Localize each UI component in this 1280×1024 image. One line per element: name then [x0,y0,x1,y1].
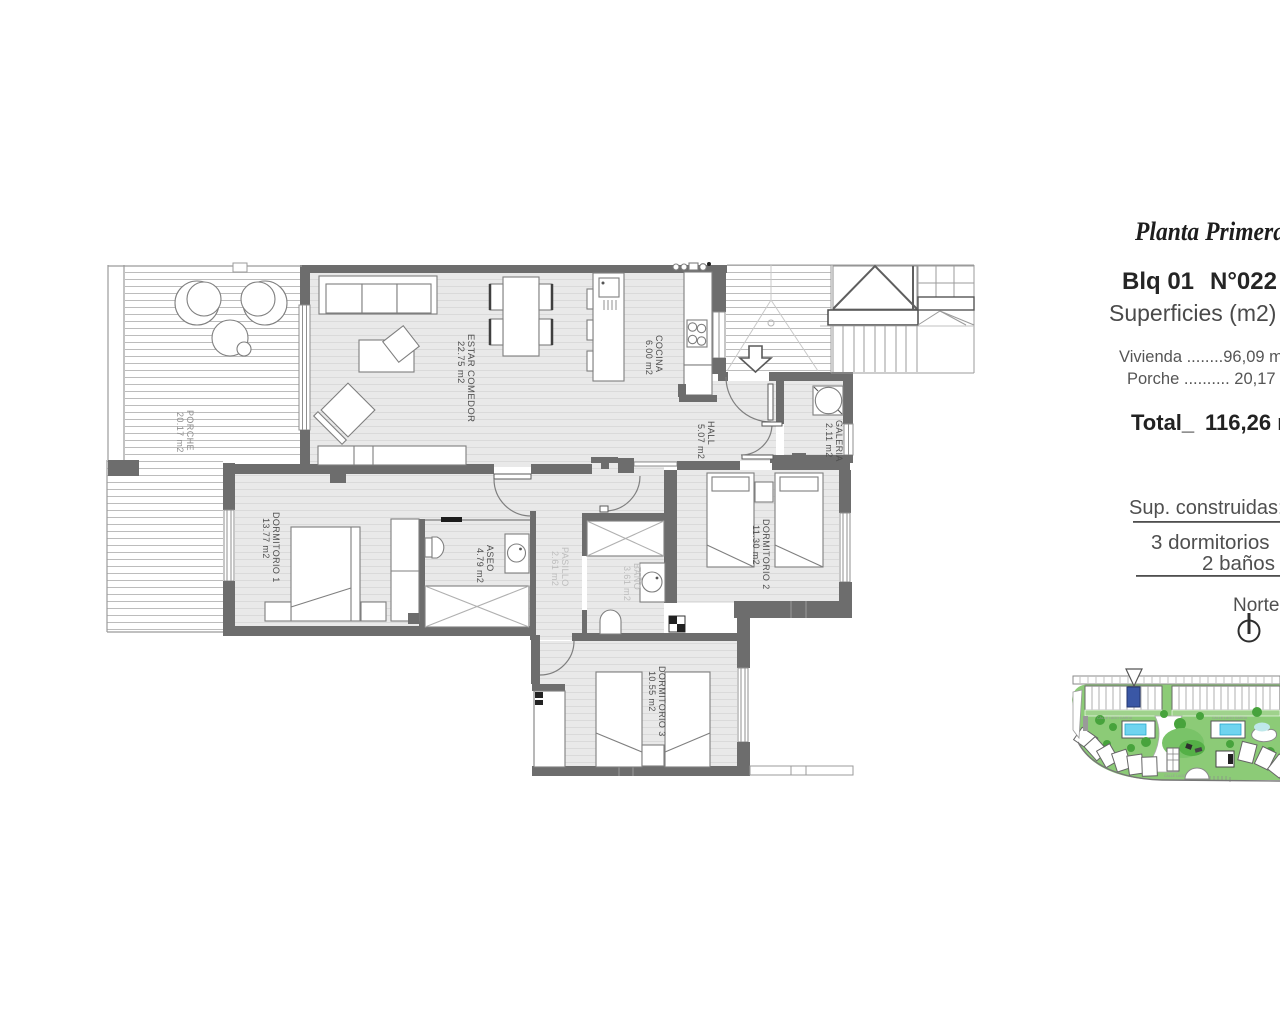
svg-text:PORCHE: PORCHE [185,410,195,451]
svg-text:3 dormitorios: 3 dormitorios [1151,531,1270,554]
svg-text:22.75 m2: 22.75 m2 [455,341,466,384]
svg-text:3.61 m2: 3.61 m2 [622,566,632,601]
svg-text:Total_: Total_ [1131,410,1195,435]
svg-text:Superficies (m2): Superficies (m2) [1109,300,1276,326]
svg-text:Norte: Norte [1233,595,1279,616]
svg-text:10.55 m2: 10.55 m2 [647,671,657,712]
svg-text:Vivienda ........96,09 m2: Vivienda ........96,09 m2 [1119,348,1280,366]
svg-text:116,26 m2: 116,26 m2 [1205,410,1280,435]
svg-text:CALLE LAGO GARDA: CALLE LAGO GARDA [1212,716,1248,720]
svg-text:2.61 m2: 2.61 m2 [550,551,560,586]
svg-text:DORMITORIO 3: DORMITORIO 3 [657,666,667,737]
svg-text:5.07 m2: 5.07 m2 [696,424,706,459]
svg-text:HALL: HALL [706,421,716,445]
svg-text:ASEO: ASEO [485,545,495,572]
svg-text:COCINA: COCINA [654,335,664,372]
svg-text:DORMITORIO 1: DORMITORIO 1 [271,512,281,583]
svg-text:11.30 m2: 11.30 m2 [751,525,761,565]
svg-text:PASILLO: PASILLO [560,547,570,587]
svg-text:2 baños: 2 baños [1202,552,1275,575]
svg-text:Planta Primera: Planta Primera [1134,217,1280,246]
svg-text:DORMITORIO 2: DORMITORIO 2 [761,519,771,590]
svg-text:2.11 m2: 2.11 m2 [824,423,834,458]
svg-text:N°022: N°022 [1210,268,1277,295]
svg-text:6.00 m2: 6.00 m2 [644,340,654,375]
svg-text:BAÑO: BAÑO [632,563,642,590]
svg-text:GALERIA: GALERIA [834,420,844,462]
svg-text:CALLE LAGO GARDA: CALLE LAGO GARDA [1097,716,1133,720]
svg-text:13.77 m2: 13.77 m2 [261,518,271,559]
svg-text:4.79 m2: 4.79 m2 [475,548,485,583]
svg-text:Sup. construidas:: Sup. construidas: [1129,497,1280,519]
svg-text:Blq 01: Blq 01 [1122,268,1194,295]
svg-text:Porche .......... 20,17 m2: Porche .......... 20,17 m2 [1127,370,1280,388]
svg-text:20.17 m2: 20.17 m2 [175,412,185,453]
